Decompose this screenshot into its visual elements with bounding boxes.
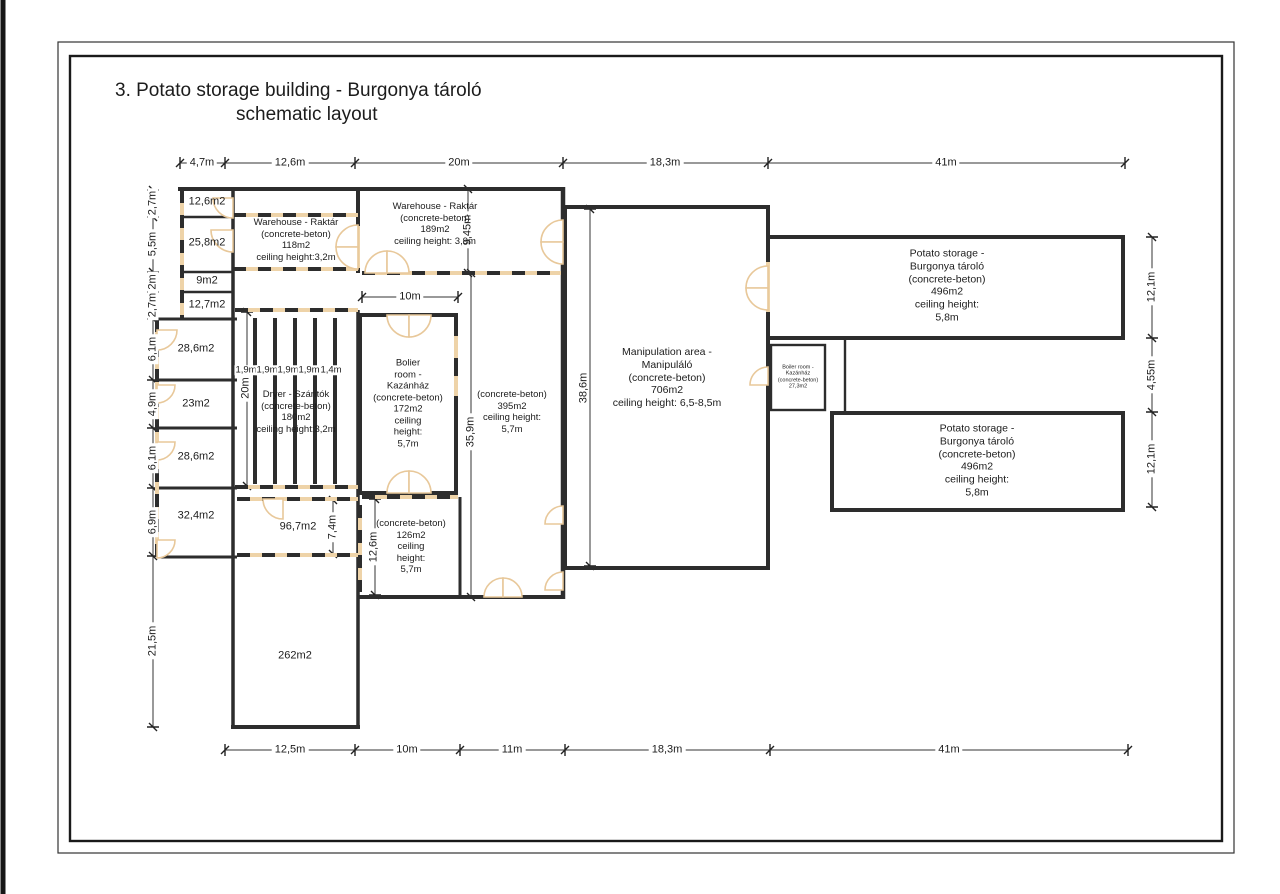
dim-dryer-bay-5: 1,4m <box>319 365 342 375</box>
room-label-manipulation: Manipulation area - Manipuláló (concrete… <box>585 346 750 410</box>
dim-bottom-2: 10m <box>393 745 420 756</box>
dim-left-1: 2,7m <box>148 188 159 218</box>
dim-room967-height: 7,4m <box>328 512 339 542</box>
room-label-room-126: (concrete-beton) 126m2 ceiling height: 5… <box>365 518 457 576</box>
dim-dryer-bay-3: 1,9m <box>276 365 299 375</box>
room-label-warehouse-189: Warehouse - Raktár (concrete-beton) 189m… <box>365 201 505 247</box>
dim-top-3: 20m <box>445 158 472 169</box>
dim-dryer-bay-2: 1,9m <box>255 365 278 375</box>
room-label-potato-storage-top: Potato storage - Burgonya tároló (concre… <box>865 248 1030 325</box>
dim-left-2: 5,5m <box>148 229 159 259</box>
room-label-25-8m2: 25,8m2 <box>189 236 226 249</box>
dim-bottom-3: 11m <box>499 745 526 756</box>
floor-plan-drawing <box>0 0 1280 894</box>
dim-bottom-5: 41m <box>935 745 962 756</box>
dim-left-7: 6,1m <box>148 443 159 473</box>
room-label-28-6m2-b: 28,6m2 <box>178 450 215 463</box>
drawing-title: 3. Potato storage building - Burgonya tá… <box>115 80 482 102</box>
dim-left-9: 21,5m <box>148 623 159 660</box>
dim-dryer-bay-4: 1,9m <box>297 365 320 375</box>
dim-left-5: 6,1m <box>148 334 159 364</box>
dim-top-2: 12,6m <box>272 158 309 169</box>
dim-boiler-width: 10m <box>396 292 423 303</box>
room-label-warehouse-118: Warehouse - Raktár (concrete-beton) 118m… <box>234 217 359 263</box>
room-label-9m2: 9m2 <box>196 274 217 287</box>
room-label-262m2: 262m2 <box>278 649 312 662</box>
dim-right-1: 12,1m <box>1147 269 1158 306</box>
room-label-28-6m2-a: 28,6m2 <box>178 342 215 355</box>
dim-right-3: 12,1m <box>1147 441 1158 478</box>
dim-dryer-bay-1: 1,9m <box>234 365 257 375</box>
dim-right-2: 4,55m <box>1147 357 1158 394</box>
dim-top-5: 41m <box>932 158 959 169</box>
room-label-23m2: 23m2 <box>182 397 210 410</box>
room-label-96-7m2: 96,7m2 <box>280 520 317 533</box>
room-label-32-4m2: 32,4m2 <box>178 509 215 522</box>
room-label-potato-storage-bottom: Potato storage - Burgonya tároló (concre… <box>895 423 1060 500</box>
dim-left-4: 2,7m <box>148 290 159 320</box>
room-label-12-7m2: 12,7m2 <box>189 298 226 311</box>
room-label-dryer: Dryer - Szárítók (concrete-beton) 180m2 … <box>239 389 354 435</box>
dim-top-1: 4,7m <box>187 158 217 169</box>
dim-left-8: 6,9m <box>148 507 159 537</box>
drawing-subtitle: schematic layout <box>236 104 378 126</box>
room-label-12-6m2: 12,6m2 <box>189 195 226 208</box>
room-label-boiler: Bolier room - Kazánház (concrete-beton) … <box>365 358 451 451</box>
dim-bottom-1: 12,5m <box>272 745 309 756</box>
room-label-boiler-small: Boiler room - Kazánház (concrete-beton) … <box>773 364 823 389</box>
dim-top-4: 18,3m <box>647 158 684 169</box>
dim-bottom-4: 18,3m <box>649 745 686 756</box>
room-label-hall-395: (concrete-beton) 395m2 ceiling height: 5… <box>466 389 558 435</box>
dim-left-6: 4,9m <box>148 389 159 419</box>
